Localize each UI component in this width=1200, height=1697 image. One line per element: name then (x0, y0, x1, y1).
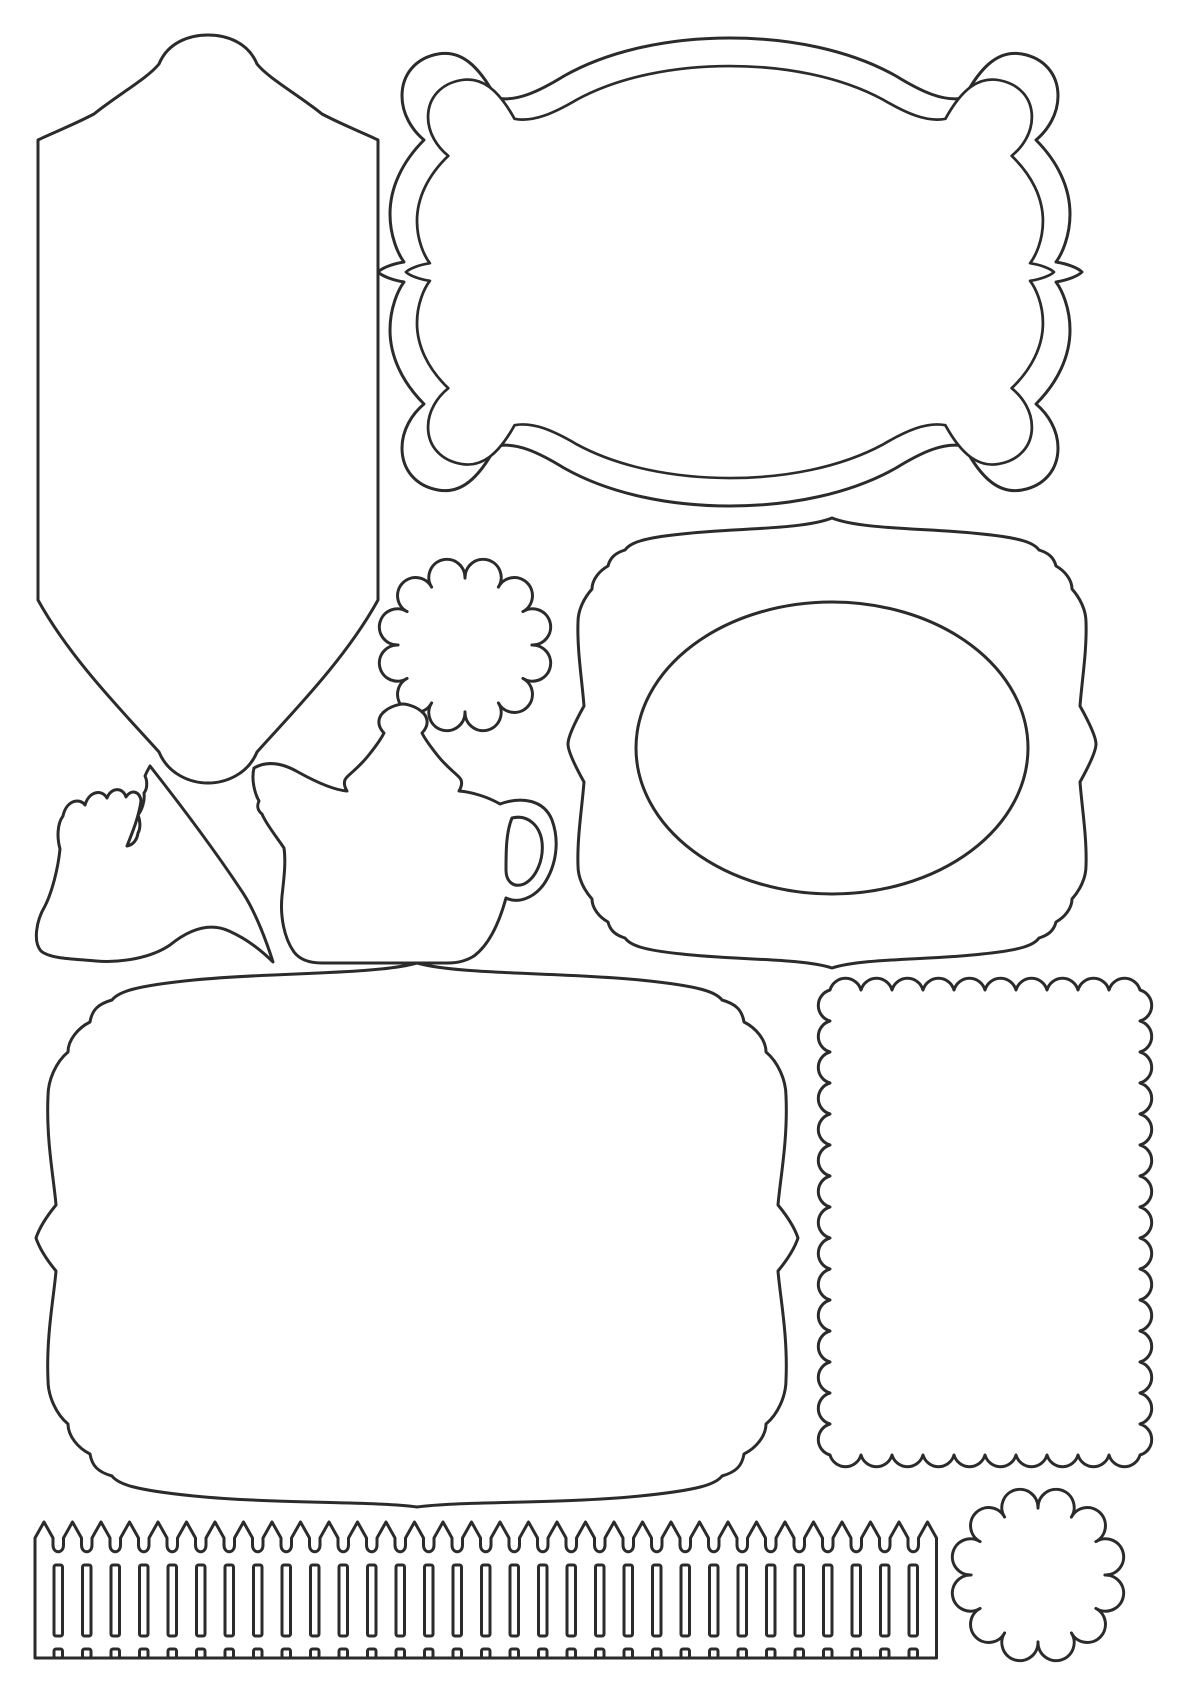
fence-slot (596, 1565, 605, 1636)
fence-bottom-notch (83, 1649, 92, 1658)
fence-slot (197, 1565, 206, 1636)
fence-slot (824, 1565, 833, 1636)
tall-bracket-tag-outline (38, 35, 378, 783)
fence-slot (681, 1565, 690, 1636)
fence-bottom-notch (881, 1649, 890, 1658)
fence-bottom-notch (453, 1649, 462, 1658)
bird-outline (36, 766, 273, 962)
fence-slot (54, 1565, 63, 1636)
double-bracket-frame-inner (406, 66, 1054, 478)
template-shapes-layer (35, 35, 1152, 1661)
fence-bottom-notch (909, 1649, 918, 1658)
picket-fence (35, 1522, 937, 1658)
fence-slot (311, 1565, 320, 1636)
fence-bottom-notch (596, 1649, 605, 1658)
fence-slot (539, 1565, 548, 1636)
fence-slot (111, 1565, 120, 1636)
fence-bottom-notch (54, 1649, 63, 1658)
fence-slot (795, 1565, 804, 1636)
fence-slot (909, 1565, 918, 1636)
fence-slot (168, 1565, 177, 1636)
fence-slot (254, 1565, 263, 1636)
fence-bottom-notch (140, 1649, 149, 1658)
fence-slot (453, 1565, 462, 1636)
fence-slot (396, 1565, 405, 1636)
fence-slot (881, 1565, 890, 1636)
fence-slot (482, 1565, 491, 1636)
fence-bottom-notch (225, 1649, 234, 1658)
fence-bottom-notch (567, 1649, 576, 1658)
fence-slot (510, 1565, 519, 1636)
scalloped-circle-small-outline (952, 1489, 1123, 1660)
fence-bottom-notch (767, 1649, 776, 1658)
fence-bottom-notch (425, 1649, 434, 1658)
fence-bottom-notch (710, 1649, 719, 1658)
fence-bottom-notch (311, 1649, 320, 1658)
fence-bottom-notch (681, 1649, 690, 1658)
fence-slot (767, 1565, 776, 1636)
fence-slot (83, 1565, 92, 1636)
template-sheet (0, 0, 1200, 1697)
oval-bracket-frame (568, 518, 1096, 968)
fence-bottom-notch (738, 1649, 747, 1658)
teapot-outline (253, 704, 556, 963)
fence-bottom-notch (282, 1649, 291, 1658)
large-bracket-frame-outline (36, 963, 798, 1507)
fence-bottom-notch (624, 1649, 633, 1658)
fence-slot (738, 1565, 747, 1636)
fence-slot (624, 1565, 633, 1636)
fence-bottom-notch (197, 1649, 206, 1658)
fence-slot (339, 1565, 348, 1636)
fence-slot (567, 1565, 576, 1636)
oval-window (636, 602, 1028, 894)
fence-slot (225, 1565, 234, 1636)
fence-bottom-notch (653, 1649, 662, 1658)
fence-slot (282, 1565, 291, 1636)
fence-bottom-notch (539, 1649, 548, 1658)
fence-slot (852, 1565, 861, 1636)
fence-bottom-notch (396, 1649, 405, 1658)
fence-bottom-notch (852, 1649, 861, 1658)
scalloped-rectangle-outline (818, 978, 1151, 1466)
fence-bottom-notch (795, 1649, 804, 1658)
fence-bottom-notch (254, 1649, 263, 1658)
fence-bottom-notch (368, 1649, 377, 1658)
fence-bottom-notch (482, 1649, 491, 1658)
fence-bottom-notch (111, 1649, 120, 1658)
fence-slot (140, 1565, 149, 1636)
fence-slot (710, 1565, 719, 1636)
fence-bottom-notch (339, 1649, 348, 1658)
fence-slot (425, 1565, 434, 1636)
fence-bottom-notch (168, 1649, 177, 1658)
fence-slot (368, 1565, 377, 1636)
fence-bottom-notch (824, 1649, 833, 1658)
fence-slot (653, 1565, 662, 1636)
fence-bottom-notch (510, 1649, 519, 1658)
